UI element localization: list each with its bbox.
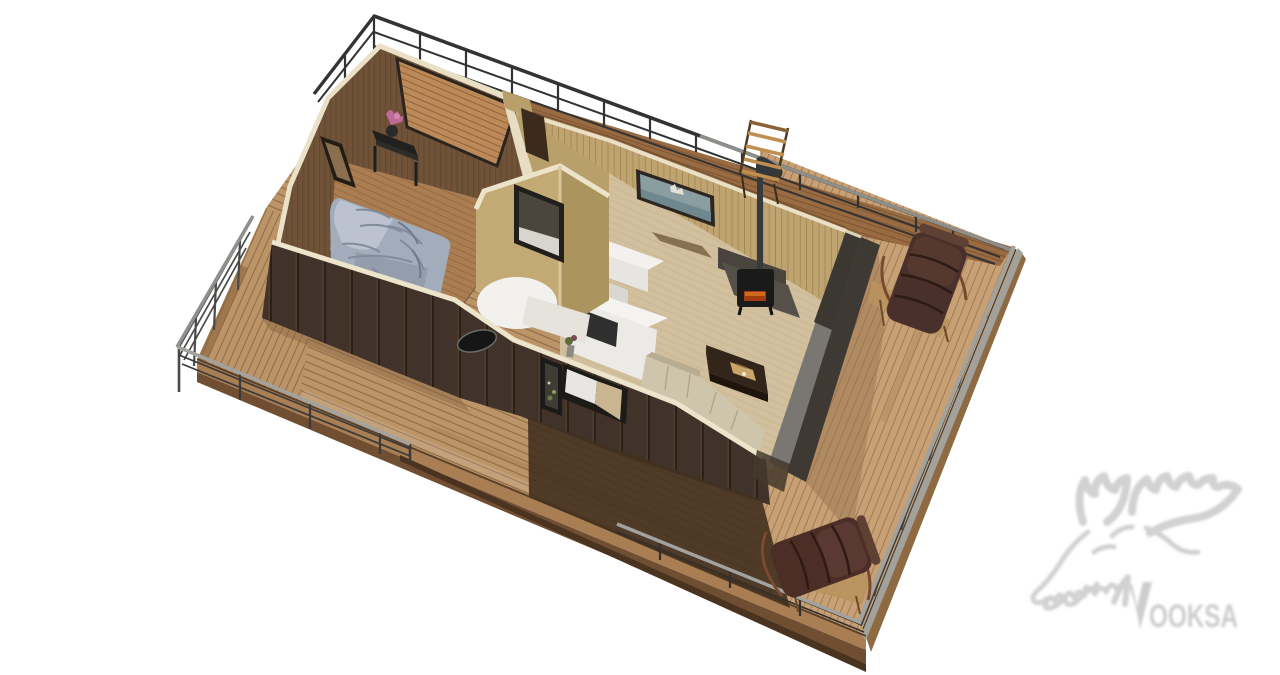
svg-text:OOKSA: OOKSA [1149, 598, 1238, 634]
